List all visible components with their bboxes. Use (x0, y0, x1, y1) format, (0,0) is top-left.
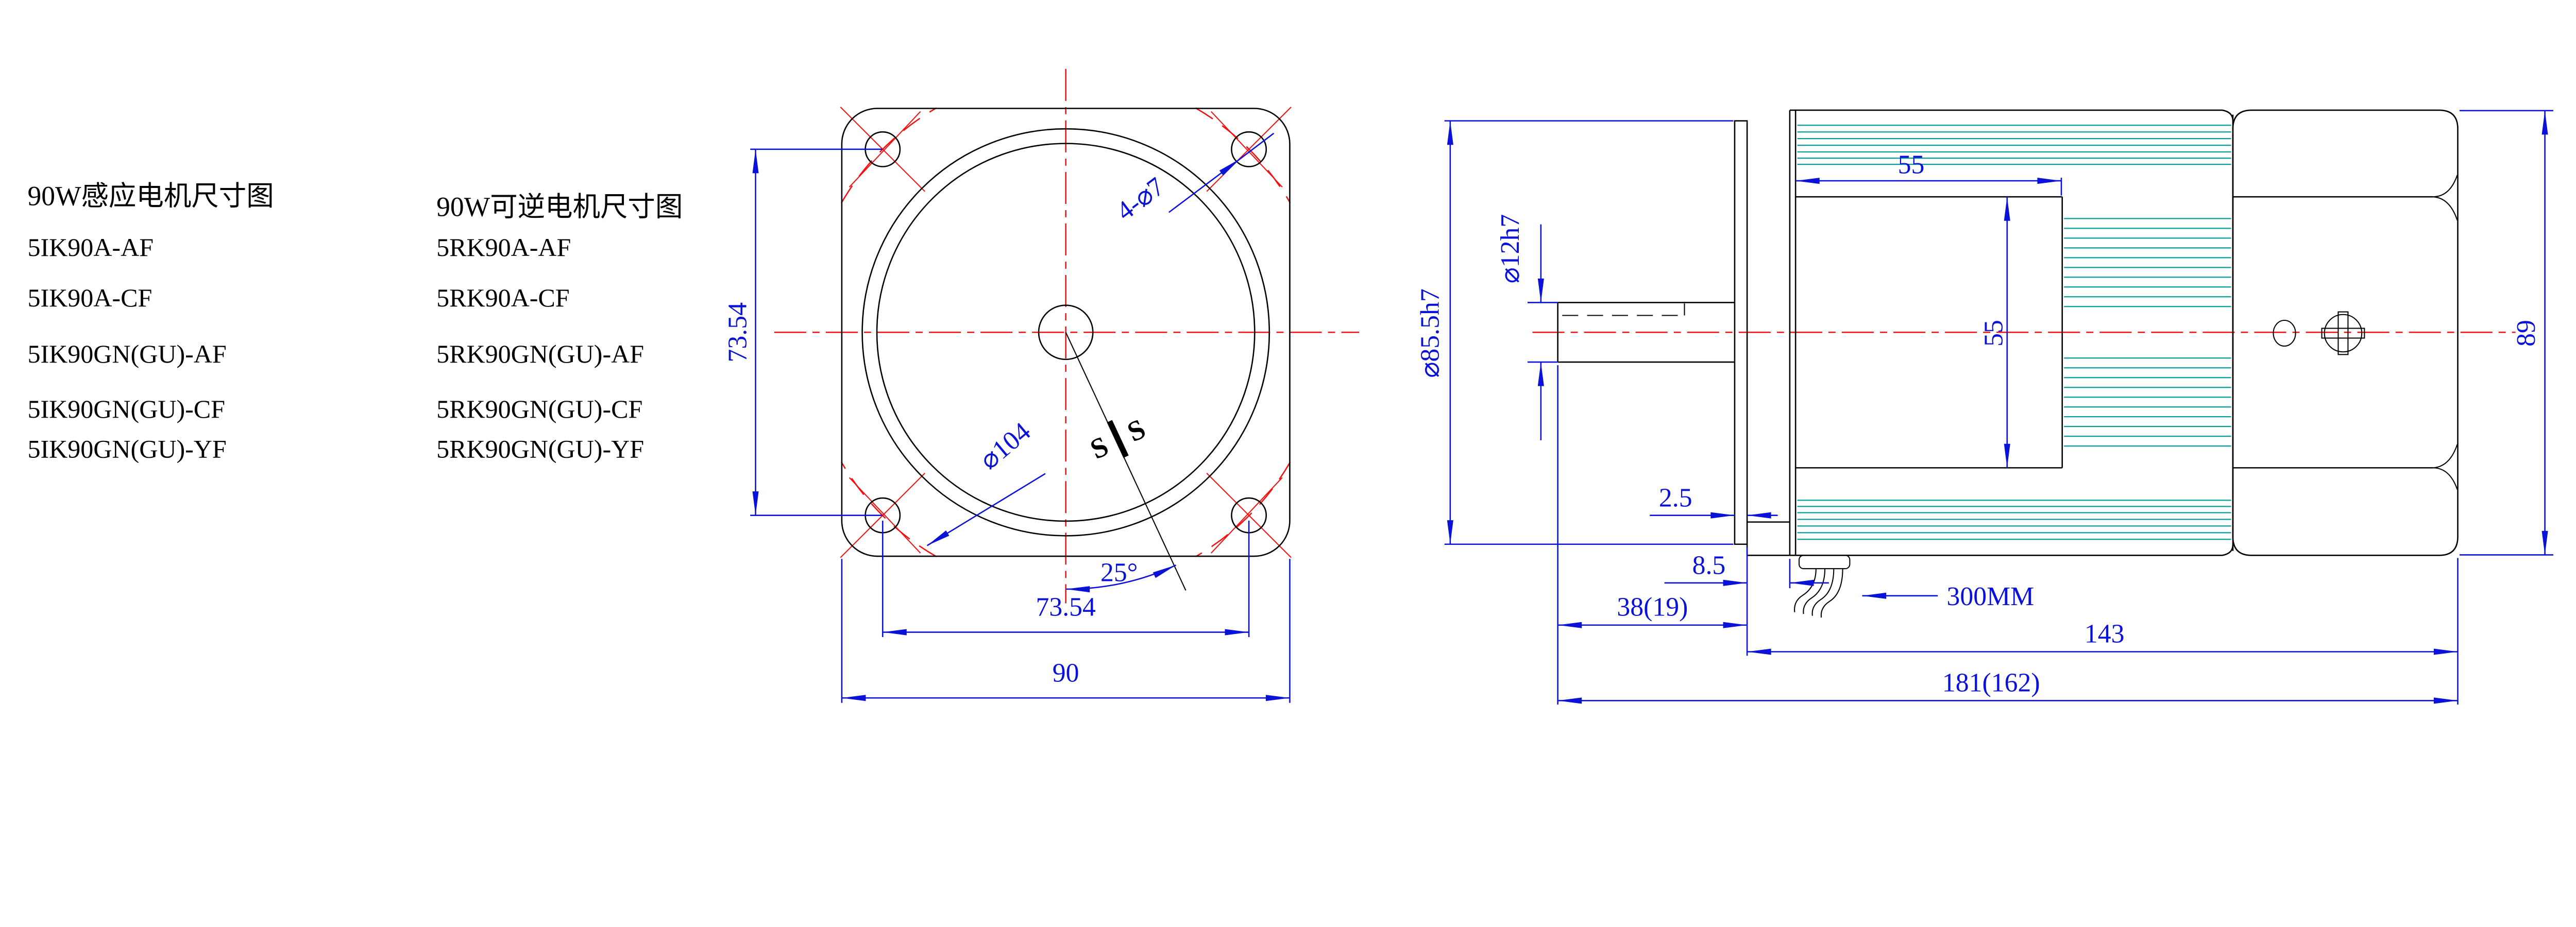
side-dimensions: ⌀85.5h7 ⌀12h7 55 55 2.5 8.5 (1416, 111, 2553, 705)
dim-gearbox-length-label: 55 (1898, 150, 1925, 179)
dim-body-flat-label: 55 (1979, 320, 2008, 347)
dim-bolt-holes-label: 4-⌀7 (1111, 172, 1170, 227)
section-label-right: S (1123, 413, 1150, 448)
leader-bolt-circle (927, 474, 1045, 546)
section-label-left: S (1086, 430, 1113, 465)
cable-exit (1794, 555, 1850, 617)
gearbox-fins-top (1798, 125, 2231, 164)
reversible-title: 90W可逆电机尺寸图 (436, 191, 683, 222)
model-item: 5RK90A-CF (436, 283, 569, 312)
dim-bolt-circle-label: ⌀104 (974, 417, 1036, 475)
motor-fins-bottom (2064, 358, 2231, 446)
model-item: 5IK90A-AF (28, 233, 154, 262)
model-list: 90W感应电机尺寸图 5IK90A-AF 5IK90A-CF 5IK90GN(G… (28, 181, 683, 463)
side-view: ⌀85.5h7 ⌀12h7 55 55 2.5 8.5 (1416, 110, 2553, 705)
dim-bolt-spacing-v-label: 73.54 (723, 302, 753, 363)
model-item: 5IK90GN(GU)-AF (28, 339, 227, 368)
dim-spigot-label: ⌀85.5h7 (1416, 288, 1445, 377)
dim-motor-height-label: 89 (2512, 320, 2541, 347)
motor-fins-top (2064, 218, 2231, 306)
dim-total-length-label: 181(162) (1942, 668, 2040, 697)
model-item: 5RK90GN(GU)-AF (436, 339, 644, 368)
motor-dimension-drawing: 90W感应电机尺寸图 5IK90A-AF 5IK90A-CF 5IK90GN(G… (0, 0, 2576, 800)
model-item: 5IK90GN(GU)-CF (28, 394, 225, 423)
front-dimensions: 73.54 73.54 90 4-⌀7 ⌀104 25° (723, 133, 1290, 703)
dim-shaft-length-label: 38(19) (1617, 593, 1688, 622)
model-item: 5RK90GN(GU)-CF (436, 394, 642, 423)
dim-shaft-label: ⌀12h7 (1496, 214, 1525, 284)
induction-title: 90W感应电机尺寸图 (28, 181, 274, 212)
dim-cable-length-label: 300MM (1946, 582, 2034, 611)
model-item: 5IK90GN(GU)-YF (28, 435, 227, 463)
front-view: S S 73.54 73.54 90 4-⌀7 (723, 69, 1359, 703)
phillips-screw-icon (2322, 312, 2365, 355)
model-item: 5RK90A-AF (436, 233, 571, 262)
lead-wire (1794, 569, 1816, 612)
dim-terminal-depth-label: 8.5 (1692, 551, 1726, 580)
cable-gland (1799, 555, 1850, 569)
section-mark: S S (1084, 409, 1152, 469)
model-item: 5RK90GN(GU)-YF (436, 435, 644, 463)
model-item: 5IK90A-CF (28, 283, 152, 312)
dim-angle-label: 25° (1100, 558, 1138, 587)
cover-hole (2274, 320, 2296, 346)
dim-body-length-label: 143 (2084, 619, 2125, 648)
dim-flange-thickness-label: 2.5 (1659, 483, 1692, 512)
drawing-sheet: 90W感应电机尺寸图 5IK90A-AF 5IK90A-CF 5IK90GN(G… (0, 0, 2576, 800)
dim-flange-width-label: 90 (1053, 658, 1079, 688)
section-line (1066, 332, 1186, 590)
dim-bolt-spacing-h-label: 73.54 (1036, 593, 1096, 622)
leader-bolt-holes-tail (1241, 133, 1274, 159)
gearbox-fins-bottom (1798, 500, 2231, 539)
